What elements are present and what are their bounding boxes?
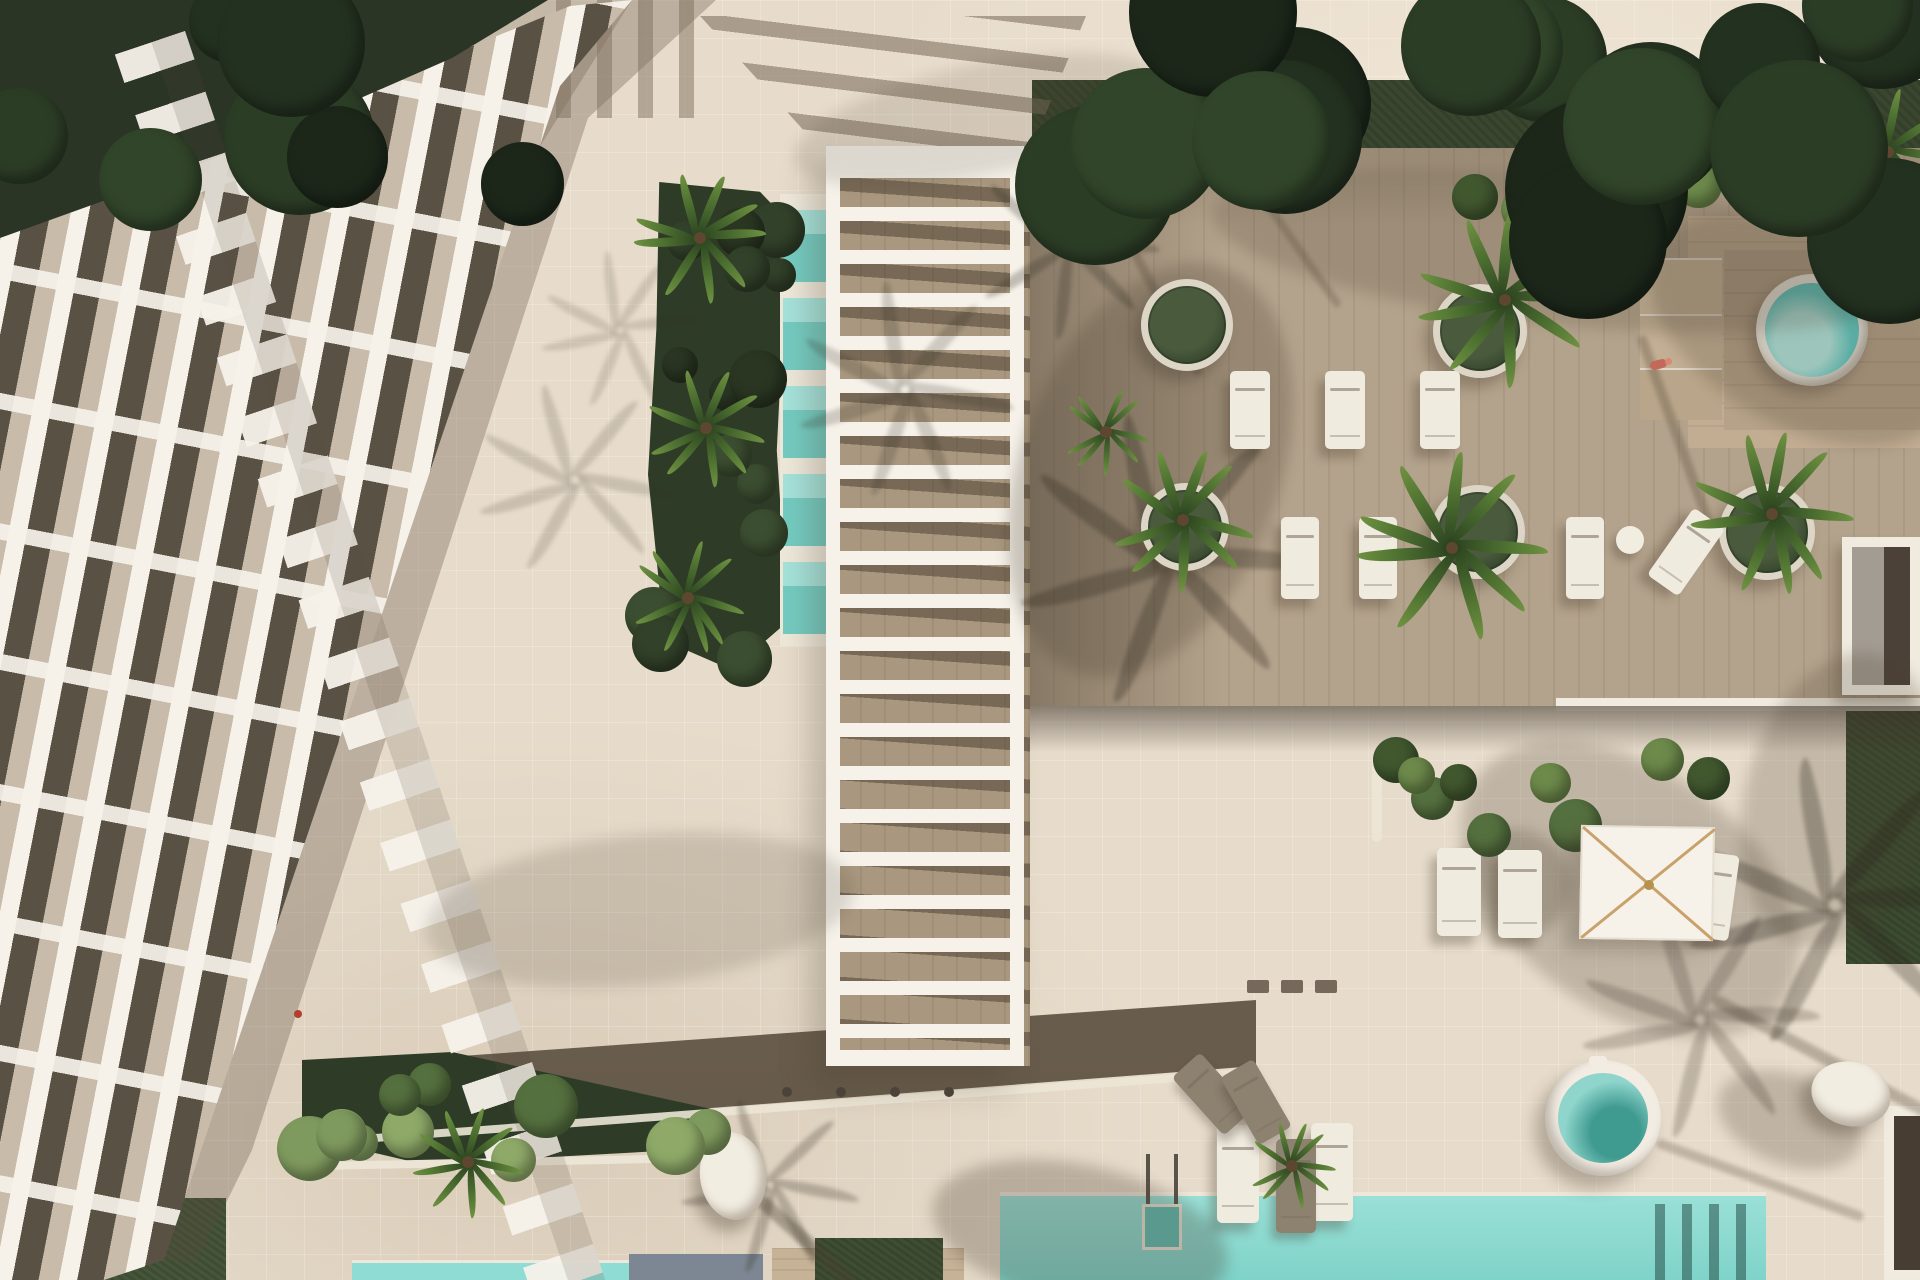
shrub: [740, 509, 788, 557]
tree-canopy: [481, 142, 565, 226]
sun-lounger: [1498, 850, 1542, 938]
shrub: [491, 1138, 536, 1183]
step-mat: [1315, 980, 1337, 993]
shrub: [514, 1074, 578, 1138]
shrub: [717, 631, 773, 687]
sun-lounger: [1437, 848, 1481, 936]
step-mat: [1281, 980, 1303, 993]
shrub: [662, 347, 698, 383]
ground-light: [782, 1087, 792, 1097]
shrub: [1687, 757, 1730, 800]
hot-tub-water: [1558, 1073, 1648, 1163]
tree-canopy: [99, 128, 202, 231]
tree-canopy: [1563, 48, 1720, 205]
sun-lounger: [1566, 517, 1604, 599]
shrub: [1467, 813, 1512, 858]
shrub: [646, 1117, 704, 1175]
sun-lounger: [1217, 1125, 1259, 1223]
framed-feature-bottom-right: [1884, 1106, 1920, 1280]
tree-canopy: [1710, 60, 1887, 237]
ground-light: [890, 1087, 900, 1097]
tree-canopy: [287, 106, 388, 207]
sun-lounger: [1230, 371, 1270, 449]
sun-lounger: [1281, 517, 1319, 599]
sun-lounger: [1420, 371, 1460, 449]
balcony-flower: [294, 1010, 302, 1018]
square-parasol: [1579, 825, 1715, 941]
aerial-resort-render: [0, 0, 1920, 1280]
hot-tub: [1545, 1060, 1661, 1176]
step-mat: [1247, 980, 1269, 993]
shrub: [379, 1074, 421, 1116]
slab-bottom: [629, 1254, 763, 1280]
shrub: [1440, 764, 1477, 801]
round-planter: [1141, 279, 1233, 371]
hot-tub-step: [1589, 1056, 1607, 1066]
side-table: [1616, 526, 1644, 554]
shrub: [1530, 763, 1570, 803]
sun-lounger: [1325, 371, 1365, 449]
shrub: [1641, 738, 1684, 781]
pergola: [826, 146, 1024, 1066]
ground-light: [836, 1087, 846, 1097]
shrub: [729, 350, 787, 408]
tree-canopy: [1192, 71, 1332, 211]
ground-light: [944, 1087, 954, 1097]
pool-step-shadows: [1655, 1204, 1760, 1280]
